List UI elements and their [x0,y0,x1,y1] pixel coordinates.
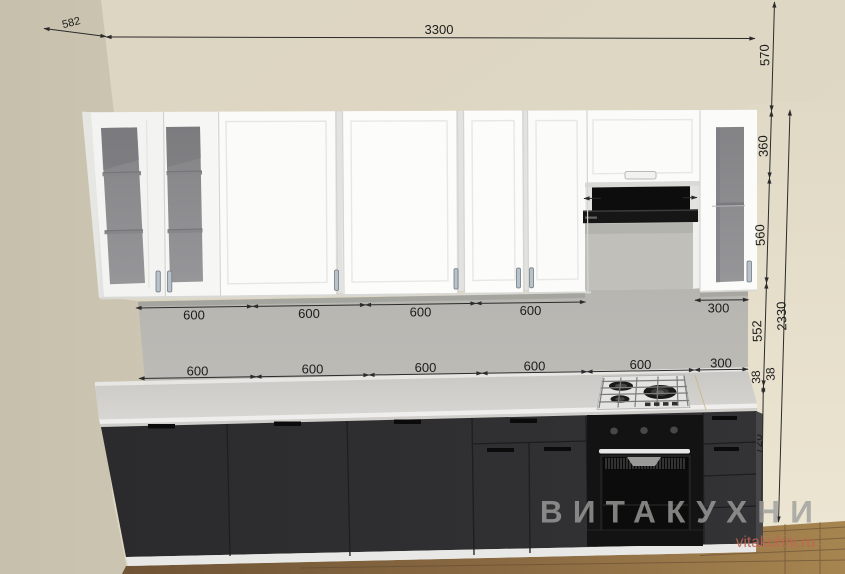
svg-text:600: 600 [183,307,205,322]
svg-text:38: 38 [763,367,777,381]
svg-text:2330: 2330 [774,301,790,330]
svg-text:552: 552 [749,320,765,342]
svg-text:570: 570 [757,44,773,66]
svg-text:38: 38 [749,370,763,384]
svg-text:600: 600 [415,360,437,375]
svg-text:300: 300 [708,301,730,316]
svg-text:600: 600 [302,362,324,377]
svg-text:ВИТАКУХНИ: ВИТАКУХНИ [540,494,823,530]
svg-text:600: 600 [524,358,546,373]
svg-text:560: 560 [752,224,768,246]
svg-text:600: 600 [630,357,652,372]
svg-text:600: 600 [298,306,320,321]
svg-text:600: 600 [187,363,209,378]
svg-text:300: 300 [710,356,732,371]
svg-text:3300: 3300 [425,22,454,37]
svg-text:600: 600 [410,305,432,320]
svg-text:vitakuhni.ru: vitakuhni.ru [736,534,815,551]
svg-text:600: 600 [520,303,542,318]
svg-text:360: 360 [755,135,771,157]
